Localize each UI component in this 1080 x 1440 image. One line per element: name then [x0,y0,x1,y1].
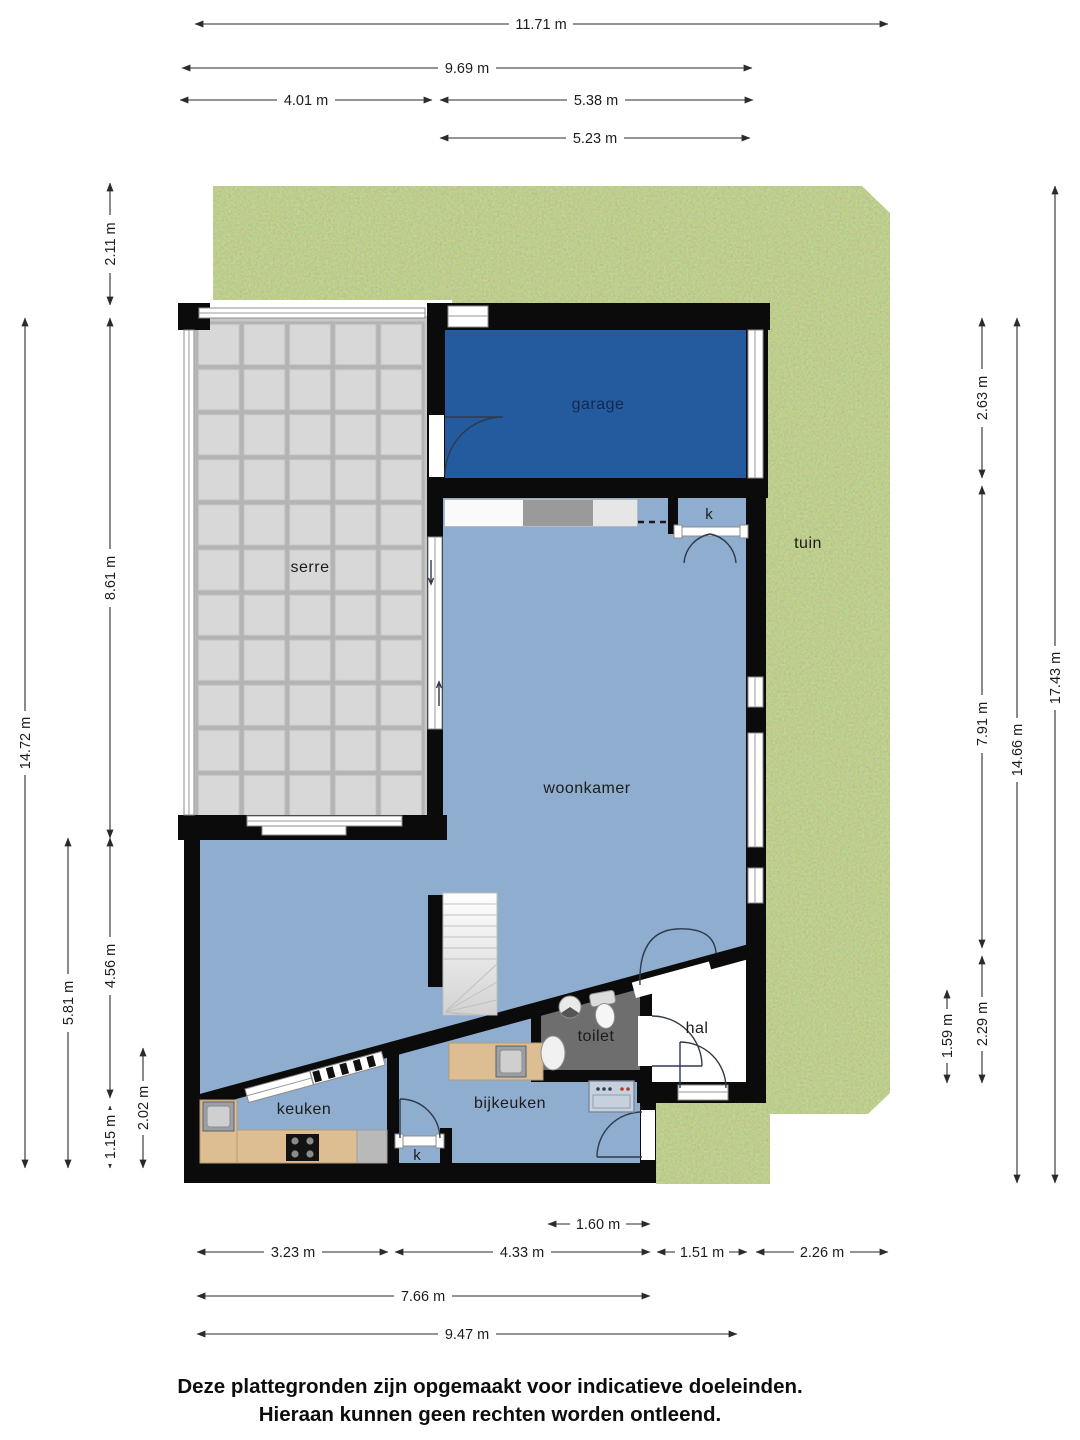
toilet-corner-basin [559,996,581,1018]
kitchen-sink [203,1102,234,1131]
toilet-bottom-wall [531,1070,648,1082]
garage-top-window [448,306,488,327]
dim-bottom-bijkeuken: 4.33 m [395,1243,650,1261]
window-woonkamer-3 [748,868,763,903]
garage-label: garage [572,396,625,413]
stairs [443,893,497,1015]
svg-text:1.59 m: 1.59 m [940,1014,956,1058]
svg-text:14.66 m: 14.66 m [1010,724,1026,776]
dim-bottom-total: 9.47 m [197,1325,737,1343]
floorplan-page: serre garage tuin woonkamer keuken bijke… [0,0,1080,1440]
serre-divider-slider [428,537,442,729]
svg-text:4.33 m: 4.33 m [500,1245,544,1261]
dim-left-woonkamer: 4.56 m [101,838,119,1098]
svg-text:11.71 m: 11.71 m [515,17,566,33]
cooktop [286,1134,319,1161]
floorplan-svg: serre garage tuin woonkamer keuken bijke… [0,0,1080,1440]
house-bottom-wall [184,1163,656,1183]
dim-left-serre: 8.61 m [101,318,119,838]
svg-text:2.26 m: 2.26 m [800,1245,844,1261]
window-woonkamer-2 [748,733,763,847]
svg-text:5.23 m: 5.23 m [573,131,617,147]
svg-text:1.51 m: 1.51 m [680,1245,724,1261]
dim-bottom-keuken: 3.23 m [197,1243,388,1261]
dim-left-setback: 2.11 m [101,183,119,305]
dim-left-keuken-depth: 2.02 m [134,1048,152,1168]
dim-bottom-inner: 7.66 m [197,1287,650,1305]
tuin-label: tuin [794,535,822,552]
serre-label: serre [291,559,330,576]
dim-top-garage: 5.38 m [440,91,753,109]
garage-right-window [748,330,763,478]
serre-left-glass-wall [184,330,194,815]
svg-text:7.91 m: 7.91 m [975,702,991,746]
dim-right-hal: 2.29 m [973,956,991,1083]
garage-bottom-wall [427,478,768,498]
toilet-sink [541,1036,565,1070]
footer-line-1: Deze plattegronden zijn opgemaakt voor i… [177,1375,802,1398]
svg-text:5.38 m: 5.38 m [574,93,618,109]
toilet-label: toilet [578,1028,615,1045]
dim-left-keuken: 1.15 m [101,1106,119,1168]
dim-right-garage: 2.63 m [973,318,991,478]
svg-text:5.81 m: 5.81 m [61,981,77,1025]
svg-text:2.29 m: 2.29 m [975,1002,991,1046]
stairs-wall [428,895,443,987]
dim-top-serre: 4.01 m [180,91,432,109]
keuken-label: keuken [277,1101,332,1118]
hal-label: hal [686,1020,709,1037]
dim-top-total: 11.71 m [195,15,888,33]
dim-right-house: 14.66 m [1008,318,1026,1183]
dim-right-woonkamer: 7.91 m [973,486,991,948]
top-cabinet-band [445,500,637,526]
dim-left-lower: 5.81 m [59,838,77,1168]
dim-bottom-hal: 1.51 m [657,1243,747,1261]
footer-line-2: Hieraan kunnen geen rechten worden ontle… [259,1403,721,1426]
footer-disclaimer: Deze plattegronden zijn opgemaakt voor i… [177,1375,802,1426]
dim-bottom-tuin: 2.26 m [756,1243,888,1261]
dim-right-total: 17.43 m [1046,186,1064,1183]
house-left-wall [184,828,200,1183]
bijkeuken-counter [449,1043,543,1080]
closet-bottom-label: k [413,1147,421,1164]
svg-text:3.23 m: 3.23 m [271,1245,315,1261]
dim-bottom-kast: 1.60 m [548,1215,650,1233]
svg-text:4.01 m: 4.01 m [284,93,328,109]
svg-text:2.63 m: 2.63 m [975,376,991,420]
svg-text:17.43 m: 17.43 m [1048,652,1064,704]
bijkeuken-label: bijkeuken [474,1095,546,1112]
svg-text:1.60 m: 1.60 m [576,1217,620,1233]
svg-text:2.11 m: 2.11 m [103,222,119,265]
svg-text:4.56 m: 4.56 m [103,944,119,988]
svg-text:1.15 m: 1.15 m [103,1115,119,1159]
svg-text:7.66 m: 7.66 m [401,1289,445,1305]
woonkamer-label: woonkamer [542,780,630,797]
dim-left-total: 14.72 m [16,318,34,1168]
closet-bottom-left-wall [387,1052,399,1167]
dim-top-inner: 9.69 m [182,59,752,77]
garden-tab [656,1103,770,1184]
svg-text:9.69 m: 9.69 m [445,61,489,77]
window-woonkamer-1 [748,677,763,707]
svg-text:2.02 m: 2.02 m [136,1086,152,1130]
svg-text:14.72 m: 14.72 m [18,717,34,769]
washing-machine [589,1081,634,1112]
serre-top-glass-wall [199,308,425,318]
svg-text:8.61 m: 8.61 m [103,556,119,600]
dim-top-garage-inner: 5.23 m [440,129,750,147]
closet-top-label: k [705,506,713,523]
svg-text:9.47 m: 9.47 m [445,1327,489,1343]
dim-right-entree: 1.59 m [938,990,956,1083]
